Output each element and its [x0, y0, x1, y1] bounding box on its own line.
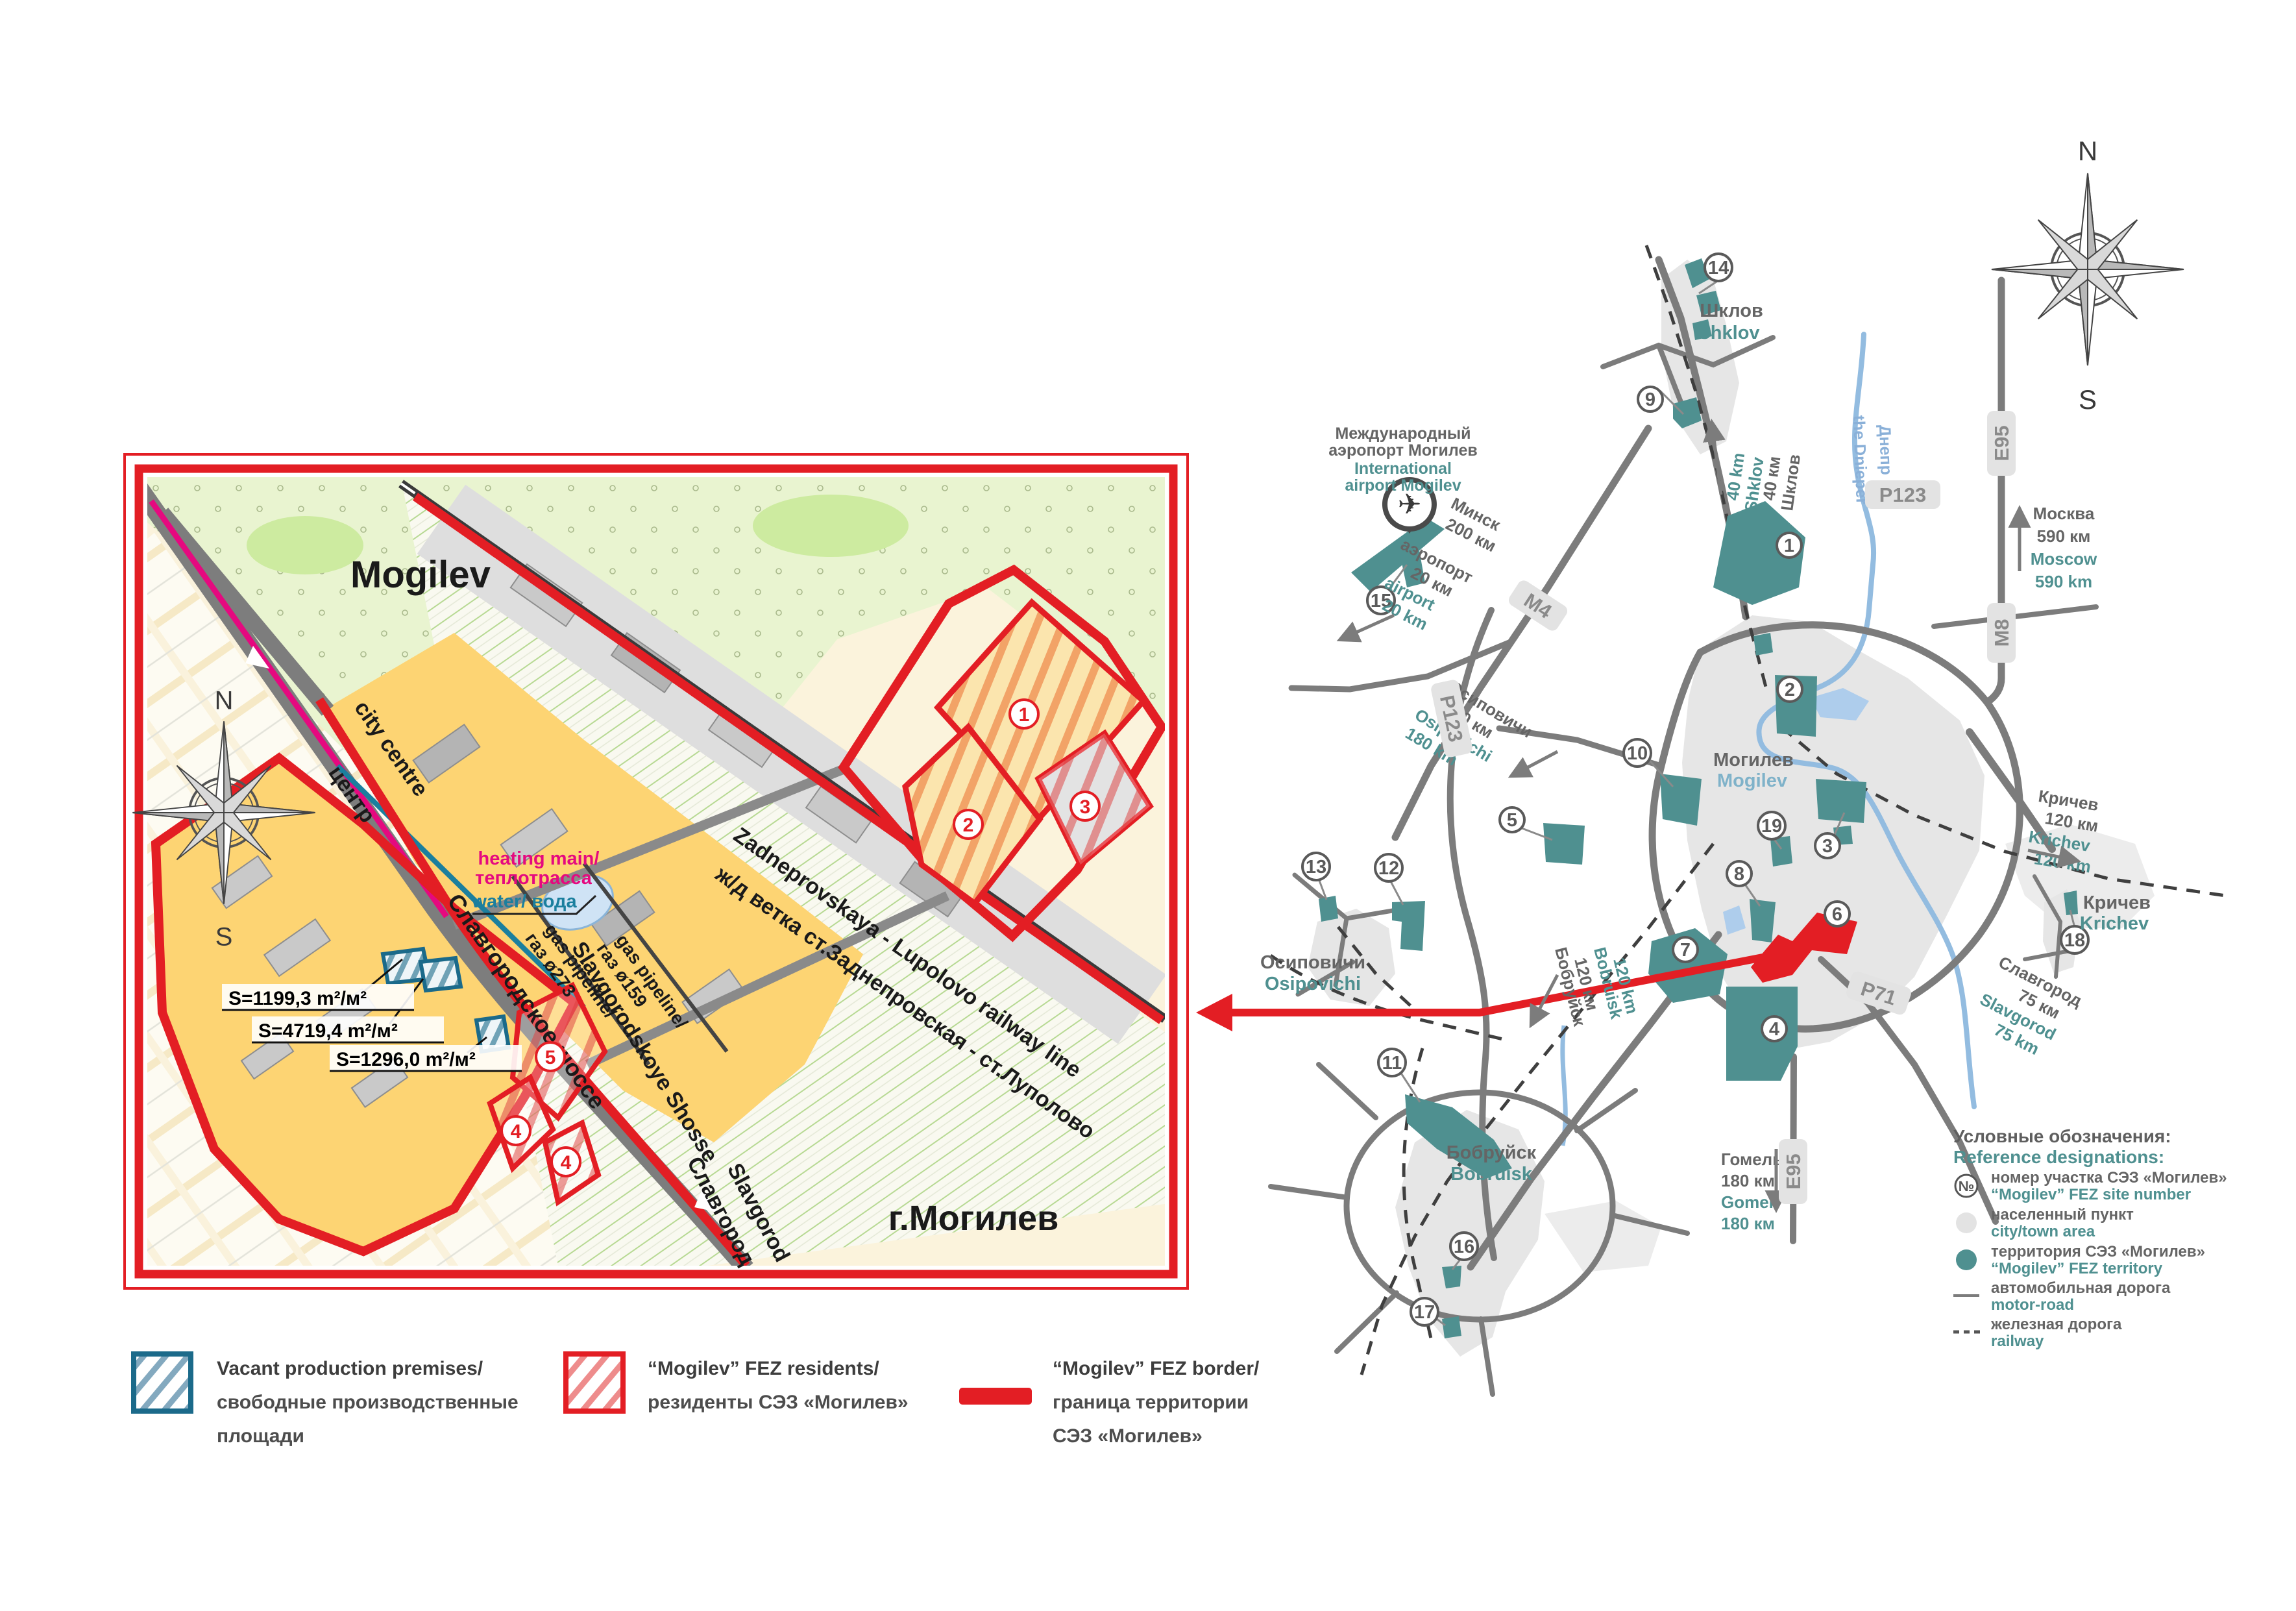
site-circle-16: 16	[1450, 1233, 1478, 1260]
legend-town-ru: населенный пункт	[1991, 1206, 2134, 1224]
regional-map: 1 2 3 4 5 6 7 8 9 10 11 12 13 14 15 16 1…	[1196, 136, 2227, 1394]
airport-label-en1: International	[1354, 460, 1452, 478]
legend-residents-ru: резиденты СЭЗ «Могилев»	[648, 1392, 909, 1413]
site-number: 13	[1306, 857, 1326, 878]
label-bobruisk-en: Bobruisk	[1450, 1164, 1533, 1185]
site-number: 17	[1414, 1302, 1435, 1323]
site-number: 12	[1378, 858, 1399, 879]
legend-title-en: Reference designations:	[1953, 1147, 2164, 1167]
dist-moscow-km-en: 590 km	[2035, 572, 2092, 591]
airport-label-ru1: Международный	[1335, 424, 1471, 443]
label-shklov-en: Shklov	[1698, 323, 1759, 343]
legend-title-ru: Условные обозначения:	[1953, 1126, 2171, 1146]
legend-railway-en: railway	[1991, 1333, 2044, 1350]
dist-gomel-km-ru: 180 км	[1721, 1171, 1775, 1190]
legend-fez-residents: “Mogilev” FEZ residents/ резиденты СЭЗ «…	[566, 1354, 909, 1413]
legend-road-ru: автомобильная дорога	[1991, 1279, 2171, 1297]
site-circle-4: 4	[1762, 1016, 1787, 1041]
legend-item-railway: железная дорога railway	[1953, 1316, 2122, 1350]
main-legend: Vacant production premises/ свободные пр…	[134, 1354, 1260, 1447]
site-number: 6	[1832, 904, 1842, 925]
legend-road-en: motor-road	[1991, 1296, 2074, 1314]
site-number: 14	[1708, 258, 1729, 278]
airport-label-ru2: аэропорт Могилев	[1328, 441, 1477, 460]
site-circle-17: 17	[1411, 1298, 1438, 1325]
border-swatch	[959, 1388, 1032, 1405]
site-number: 10	[1627, 743, 1648, 764]
site-circle-9: 9	[1638, 387, 1663, 412]
dist-moscow-ru: Москва	[2033, 504, 2095, 523]
area-label-3: S=1296,0 m²/м²	[336, 1049, 476, 1070]
site-circle-19: 19	[1758, 812, 1785, 839]
vacant-swatch	[134, 1354, 191, 1411]
compass-rose: N S	[1988, 136, 2186, 415]
inset-site-3: 3	[1080, 796, 1091, 818]
vacant-premises-2	[421, 958, 461, 990]
area-label-2: S=4719,4 m²/м²	[258, 1020, 398, 1042]
site-circle-14: 14	[1705, 254, 1732, 281]
inset-title: Mogilev	[350, 554, 491, 596]
dist-gomel-en: Gomel	[1721, 1192, 1774, 1212]
label-bobruisk-ru: Бобруйск	[1447, 1142, 1537, 1163]
site-number: 1	[1784, 535, 1794, 556]
legend-border-ru2: СЭЗ «Могилев»	[1053, 1425, 1203, 1447]
airport-label-en2: airport Mogilev	[1345, 476, 1461, 495]
site-number: 7	[1680, 940, 1691, 961]
inset-site-4b: 4	[561, 1152, 572, 1174]
dist-moscow-en: Moscow	[2031, 549, 2097, 569]
river-label-ru: Днепр	[1875, 424, 1896, 475]
site-number: 3	[1822, 836, 1833, 857]
legend-residents-en: “Mogilev” FEZ residents/	[648, 1358, 879, 1379]
legend-railway-ru: железная дорога	[1990, 1316, 2122, 1333]
site-number: 5	[1507, 810, 1517, 831]
site-number: 11	[1382, 1053, 1402, 1074]
badge-p123-2: Р123	[1879, 484, 1926, 506]
site-number: 9	[1645, 389, 1655, 410]
site-circle-2: 2	[1777, 677, 1802, 702]
label-mogilev-ru: Могилев	[1713, 750, 1794, 770]
airport-labels: Международный аэропорт Могилев Internati…	[1328, 424, 1477, 495]
site-circle-1: 1	[1777, 533, 1801, 558]
legend-fez-border: “Mogilev” FEZ border/ граница территории…	[959, 1358, 1260, 1447]
legend-vacant-ru1: свободные производственные	[217, 1392, 519, 1413]
site-circle-8: 8	[1727, 861, 1752, 886]
inset-site-5: 5	[545, 1047, 556, 1068]
legend-item-motor-road: автомобильная дорога motor-road	[1953, 1279, 2171, 1314]
label-mogilev-en: Mogilev	[1717, 770, 1787, 791]
site-number-symbol: №	[1959, 1178, 1975, 1194]
legend-territory-en: “Mogilev” FEZ territory	[1991, 1260, 2163, 1277]
site-circle-11: 11	[1378, 1049, 1406, 1076]
inset-city-label: г.Могилев	[888, 1199, 1059, 1238]
site-circle-3: 3	[1815, 833, 1840, 858]
dist-gomel-ru: Гомель	[1721, 1150, 1783, 1169]
inset-site-1: 1	[1019, 704, 1030, 726]
osipovichi-direction-arrow	[1512, 752, 1557, 776]
legend-item-town-area: населенный пункт city/town area	[1956, 1206, 2134, 1240]
legend-town-en: city/town area	[1991, 1223, 2095, 1240]
label-osipovichi-ru: Осиповичи	[1260, 952, 1365, 973]
inset-compass-south: S	[215, 922, 233, 951]
site-number: 8	[1734, 864, 1744, 885]
legend-site-number-en: “Mogilev” FEZ site number	[1991, 1186, 2191, 1203]
legend-border-en: “Mogilev” FEZ border/	[1053, 1358, 1260, 1379]
legend-item-fez-territory: территория СЭЗ «Могилев» “Mogilev” FEZ t…	[1956, 1243, 2205, 1277]
badge-e95-south: Е95	[1782, 1153, 1805, 1189]
residents-swatch	[566, 1354, 623, 1411]
label-krichev-ru: Кричев	[2083, 892, 2151, 913]
inset-map: Mogilev г.Могилев city centre центр Слав…	[125, 454, 1188, 1288]
airport-direction-arrow	[1341, 615, 1394, 639]
heating-main-label-ru: теплотрасса	[475, 868, 592, 889]
site-number: 4	[1769, 1019, 1779, 1040]
site-circle-6: 6	[1825, 902, 1850, 926]
site-number: 2	[1785, 680, 1795, 700]
area-label-1: S=1199,3 m²/м²	[228, 988, 367, 1009]
legend-border-ru1: граница территории	[1053, 1392, 1249, 1413]
badge-m8: М8	[1990, 619, 2013, 646]
inset-compass-north: N	[215, 686, 234, 715]
site-circle-7: 7	[1673, 937, 1698, 962]
water-label: water/ вода	[471, 891, 577, 912]
site-number: 16	[1454, 1236, 1474, 1257]
site-circle-12: 12	[1375, 854, 1402, 881]
map-screenshot: 1 2 3 4 5 6 7 8 9 10 11 12 13 14 15 16 1…	[0, 0, 2296, 1611]
legend-vacant-premises: Vacant production premises/ свободные пр…	[134, 1354, 519, 1447]
inset-site-4a: 4	[511, 1121, 522, 1142]
compass-south-label: S	[2079, 384, 2097, 415]
legend-territory-ru: территория СЭЗ «Могилев»	[1991, 1243, 2205, 1261]
legend-vacant-en: Vacant production premises/	[217, 1358, 483, 1379]
label-osipovichi-en: Osipovichi	[1265, 974, 1361, 994]
site-circle-5: 5	[1500, 807, 1524, 832]
site-circle-10: 10	[1624, 739, 1651, 767]
label-krichev-en: Krichev	[2080, 913, 2149, 934]
legend-item-site-number: № номер участка СЭЗ «Могилев» “Mogilev” …	[1955, 1169, 2227, 1203]
dist-moscow-km-ru: 590 км	[2037, 526, 2091, 546]
site-circle-13: 13	[1302, 853, 1330, 880]
badge-e95: Е95	[1990, 425, 2013, 461]
legend-site-number-ru: номер участка СЭЗ «Могилев»	[1991, 1169, 2227, 1187]
inset-site-2: 2	[963, 815, 974, 836]
label-shklov-ru: Шклов	[1700, 301, 1763, 321]
dist-gomel-km-en: 180 км	[1721, 1214, 1775, 1233]
site-number: 19	[1761, 816, 1782, 837]
reference-legend: Условные обозначения: Reference designat…	[1953, 1126, 2227, 1350]
heating-main-label-en: heating main/	[478, 848, 600, 869]
legend-vacant-ru2: площади	[217, 1425, 304, 1447]
compass-north-label: N	[2078, 136, 2097, 166]
